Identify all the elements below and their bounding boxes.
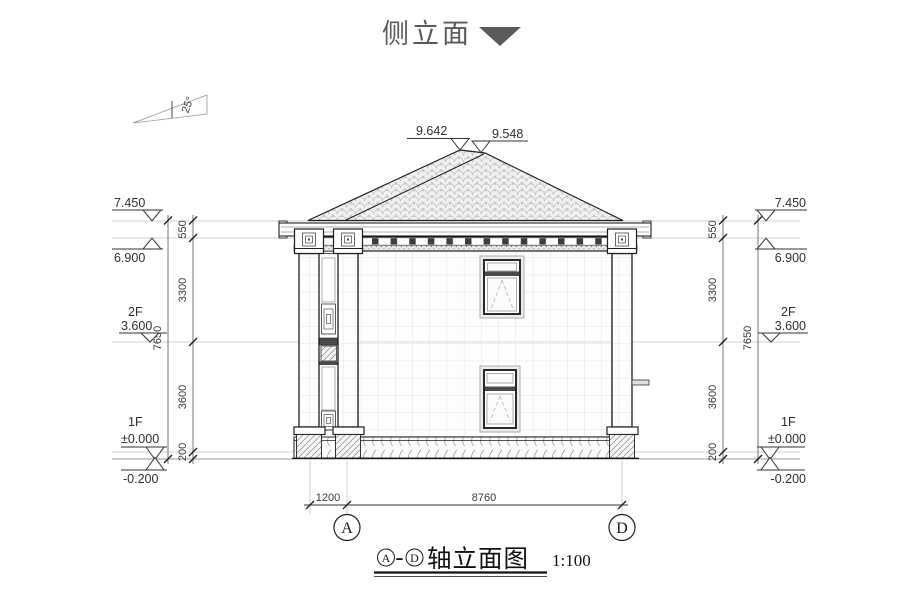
floor1-tag: 1F <box>128 415 143 429</box>
bottom-dimensions: 1200 8760 A D <box>304 492 635 541</box>
dim-chain-left: 550 3300 3600 200 7650 <box>152 215 197 464</box>
casement-pane <box>487 394 513 424</box>
caption-axis-a: A <box>382 551 391 565</box>
overflow-spout <box>632 380 649 385</box>
floor1-tag: 1F <box>781 415 796 429</box>
transom-pane <box>488 263 517 271</box>
dim-story2: 3300 <box>177 278 189 302</box>
roof-slope-indicator: 25° <box>133 95 207 123</box>
lattice-panel-upper <box>322 304 336 334</box>
dim-parapet: 550 <box>707 220 719 238</box>
window-1f <box>480 366 520 432</box>
dim-porch: 1200 <box>316 492 340 504</box>
transom-bar <box>485 387 515 392</box>
level-parapet-top: 7.450 <box>114 196 145 210</box>
levels-right: 7.450 6.900 2F 3.600 1F ±0.000 -0.200 <box>755 196 808 486</box>
axis-letter: D <box>616 520 628 537</box>
level-floor2: 3.600 <box>775 319 806 333</box>
floor2-tag: 2F <box>128 305 143 319</box>
level-value: 9.548 <box>492 127 523 141</box>
level-value: 9.642 <box>416 124 447 138</box>
dim-ticks <box>719 217 762 464</box>
caption-scale: 1:100 <box>552 551 591 570</box>
level-ground: -0.200 <box>123 472 158 486</box>
level-eave: 6.900 <box>114 251 145 265</box>
floor2-tag: 2F <box>781 305 796 319</box>
transom-bar <box>485 272 519 277</box>
dim-plinth: 200 <box>177 443 189 461</box>
dim-story1: 3600 <box>177 385 189 409</box>
level-ground: -0.200 <box>771 472 806 486</box>
roof <box>308 150 623 221</box>
slab-band <box>320 338 338 345</box>
dim-story2: 3300 <box>707 278 719 302</box>
level-floor1: ±0.000 <box>121 432 159 446</box>
dim-story1: 3600 <box>707 385 719 409</box>
dim-ticks <box>164 217 197 464</box>
dim-plinth: 200 <box>707 443 719 461</box>
dim-chain-right: 550 3300 3600 200 7650 <box>707 215 762 464</box>
caption-separator: - <box>395 544 404 571</box>
level-eave: 6.900 <box>775 251 806 265</box>
transom-pane <box>487 374 513 384</box>
caption-axis-d: D <box>410 551 419 565</box>
dim-parapet: 550 <box>177 220 189 238</box>
page-title: 侧立面 <box>382 19 472 49</box>
drawing-caption: A - D 轴立面图 1:100 <box>374 544 591 577</box>
pillar-axis-d <box>607 229 649 458</box>
axis-bubble-a: A <box>334 515 360 541</box>
level-parapet-top: 7.450 <box>775 196 806 210</box>
level-floor1: ±0.000 <box>768 432 806 446</box>
dim-span: 8760 <box>472 492 496 504</box>
level-floor2: 3.600 <box>121 319 152 333</box>
dim-total: 7650 <box>742 326 754 350</box>
bay-panel-upper <box>322 258 335 302</box>
axis-bubble-d: D <box>609 515 635 541</box>
railing-hatch-panel <box>321 346 337 361</box>
elevation-drawing: 侧立面 25° <box>0 0 910 612</box>
section-header[interactable]: 侧立面 <box>382 19 521 49</box>
stair-bay <box>319 254 339 438</box>
bay-panel-lower <box>322 367 335 410</box>
ridge-level-left: 9.642 <box>407 124 470 150</box>
axis-letter: A <box>341 520 353 537</box>
chevron-down-icon[interactable] <box>479 27 521 46</box>
band <box>320 362 338 366</box>
ridge-level-right: 9.548 <box>472 127 528 153</box>
window-2f <box>480 256 524 318</box>
caption-title: 轴立面图 <box>427 545 529 573</box>
